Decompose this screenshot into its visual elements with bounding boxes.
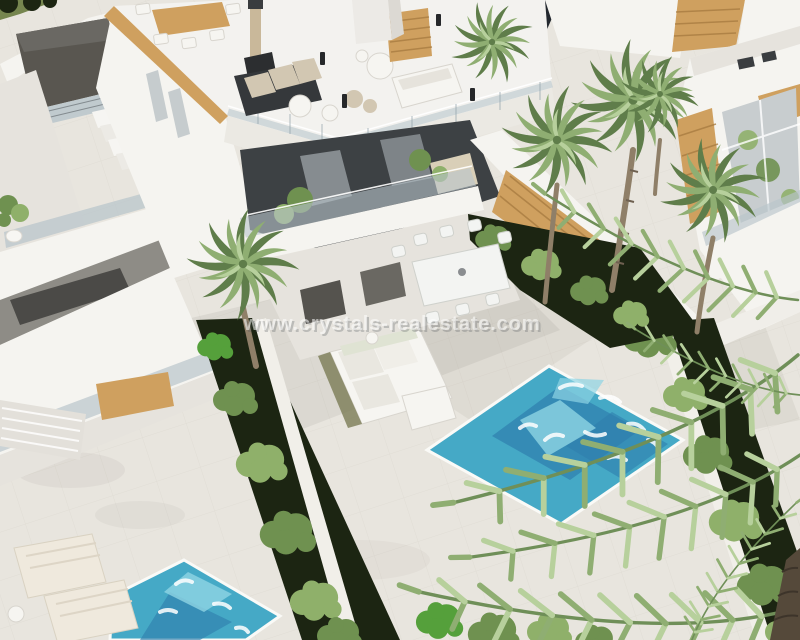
watermark: www.crystals-realestate.com www.crystals… <box>243 312 543 337</box>
lounger-side-table <box>8 606 24 622</box>
render-canvas: www.crystals-realestate.com www.crystals… <box>0 0 800 640</box>
watermark-text: www.crystals-realestate.com <box>243 312 541 335</box>
villa-render-scene: www.crystals-realestate.com www.crystals… <box>0 0 800 640</box>
roof-chimney-volume <box>352 0 392 44</box>
roof-round-table <box>367 53 393 79</box>
roof-side-table <box>322 105 338 121</box>
roof-ottoman-2 <box>363 99 377 113</box>
roof-ottoman-1 <box>345 90 363 108</box>
back-wood-panel <box>672 0 745 52</box>
roof-coffee-table <box>289 95 311 117</box>
